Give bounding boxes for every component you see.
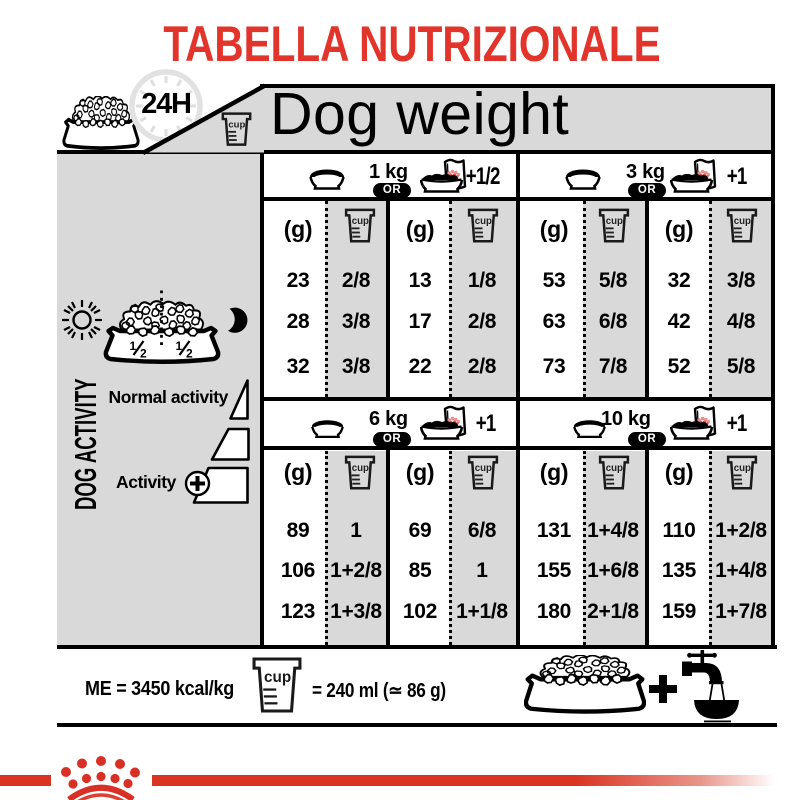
svg-text:+1: +1 [727, 410, 748, 437]
svg-text:2: 2 [140, 347, 147, 361]
svg-text:+1: +1 [476, 410, 497, 437]
svg-text:DOG ACTIVITY: DOG ACTIVITY [69, 378, 103, 510]
svg-text:+1/2: +1/2 [466, 163, 501, 190]
svg-text:+1: +1 [727, 163, 748, 190]
svg-text:2: 2 [186, 347, 193, 361]
svg-text:cup: cup [264, 669, 291, 686]
